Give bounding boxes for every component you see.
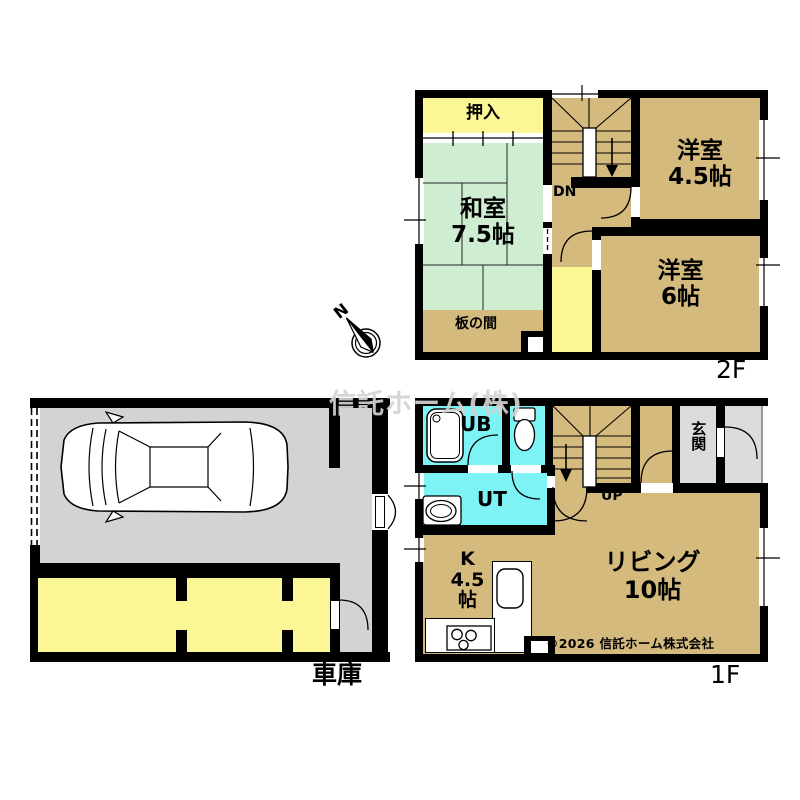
wall-segment [176,578,187,601]
copyright-text: ©2026 信託ホーム株式会社 [546,637,714,651]
kitchen-counter [425,618,495,653]
kitchen-size-num: 4.5 [445,570,490,591]
garage-label: 車庫 [312,661,362,690]
wall-segment [415,525,555,535]
wall-segment [521,331,528,352]
oshiire-label: 押入 [423,104,543,124]
floor-label-1f: 1F [710,661,740,690]
wall-segment [282,578,293,601]
washitsu-name: 和室 [423,196,543,222]
porch-area [725,406,761,483]
youshitsu6-name: 洋室 [601,258,760,284]
wall-segment [716,458,725,483]
wall-segment [372,398,388,662]
door-gap-ut [547,476,555,488]
door-gap-ub [468,465,498,473]
wall-segment [545,406,553,465]
washitsu-size: 7.5帖 [423,222,543,248]
wall-segment [176,630,187,652]
floor-label-2f: 2F [716,356,746,385]
corridor-2f [552,267,592,352]
wall-segment [631,398,640,487]
wall-notch [528,337,543,352]
youshitsu6-size: 6帖 [601,284,760,310]
ut-label: UT [477,488,507,511]
youshitsu45-name: 洋室 [640,138,760,164]
wall-segment [673,483,768,493]
wall-segment [282,630,293,652]
door-gap-washitsu [543,185,552,222]
wall-segment [543,98,552,352]
door-gap-toilet [511,465,541,473]
stairs-dn-label: DN [553,184,576,200]
window-kitchen [414,538,424,562]
opening-washitsu [543,228,552,254]
garage-side-door-leaf [375,496,385,528]
wall-segment [30,398,40,408]
kitchen-size-unit: 帖 [445,590,490,611]
front-door-leaf [716,427,725,458]
door-gap-youshitsu6 [592,240,601,270]
porch-edge [761,406,763,483]
living-name: リビング [555,549,750,577]
wall-segment [716,406,725,427]
wall-segment [30,563,340,578]
window-ut [414,473,424,499]
floorplan-canvas: N 押入 和室 7.5帖 DN 洋室 4.5帖 洋室 6帖 板の間 2F UB … [0,0,800,800]
window-youshitsu45 [759,120,769,200]
storage-door-leaf [330,600,340,630]
window-stairwell [552,90,598,98]
wall-segment [592,227,768,236]
youshitsu45-size: 4.5帖 [640,164,760,190]
itanoma-label: 板の間 [423,316,529,332]
wall-segment [672,398,680,493]
kitchen-name: K [445,549,490,570]
genkan-label: 玄関 [689,421,706,467]
door-gap-hall [641,483,673,493]
window-living [759,528,769,606]
stairs-up-label: UP [601,488,623,504]
door-gap-youshitsu45 [631,187,640,217]
compass-north-label: N [330,299,352,322]
window-youshitsu6 [759,258,769,306]
compass-icon: N [330,299,380,357]
watermark: 信託ホーム(株) [329,382,523,421]
door-arc [388,495,396,529]
sliding-door-track [423,133,543,143]
wall-segment [571,177,640,188]
living-size: 10帖 [555,577,750,605]
